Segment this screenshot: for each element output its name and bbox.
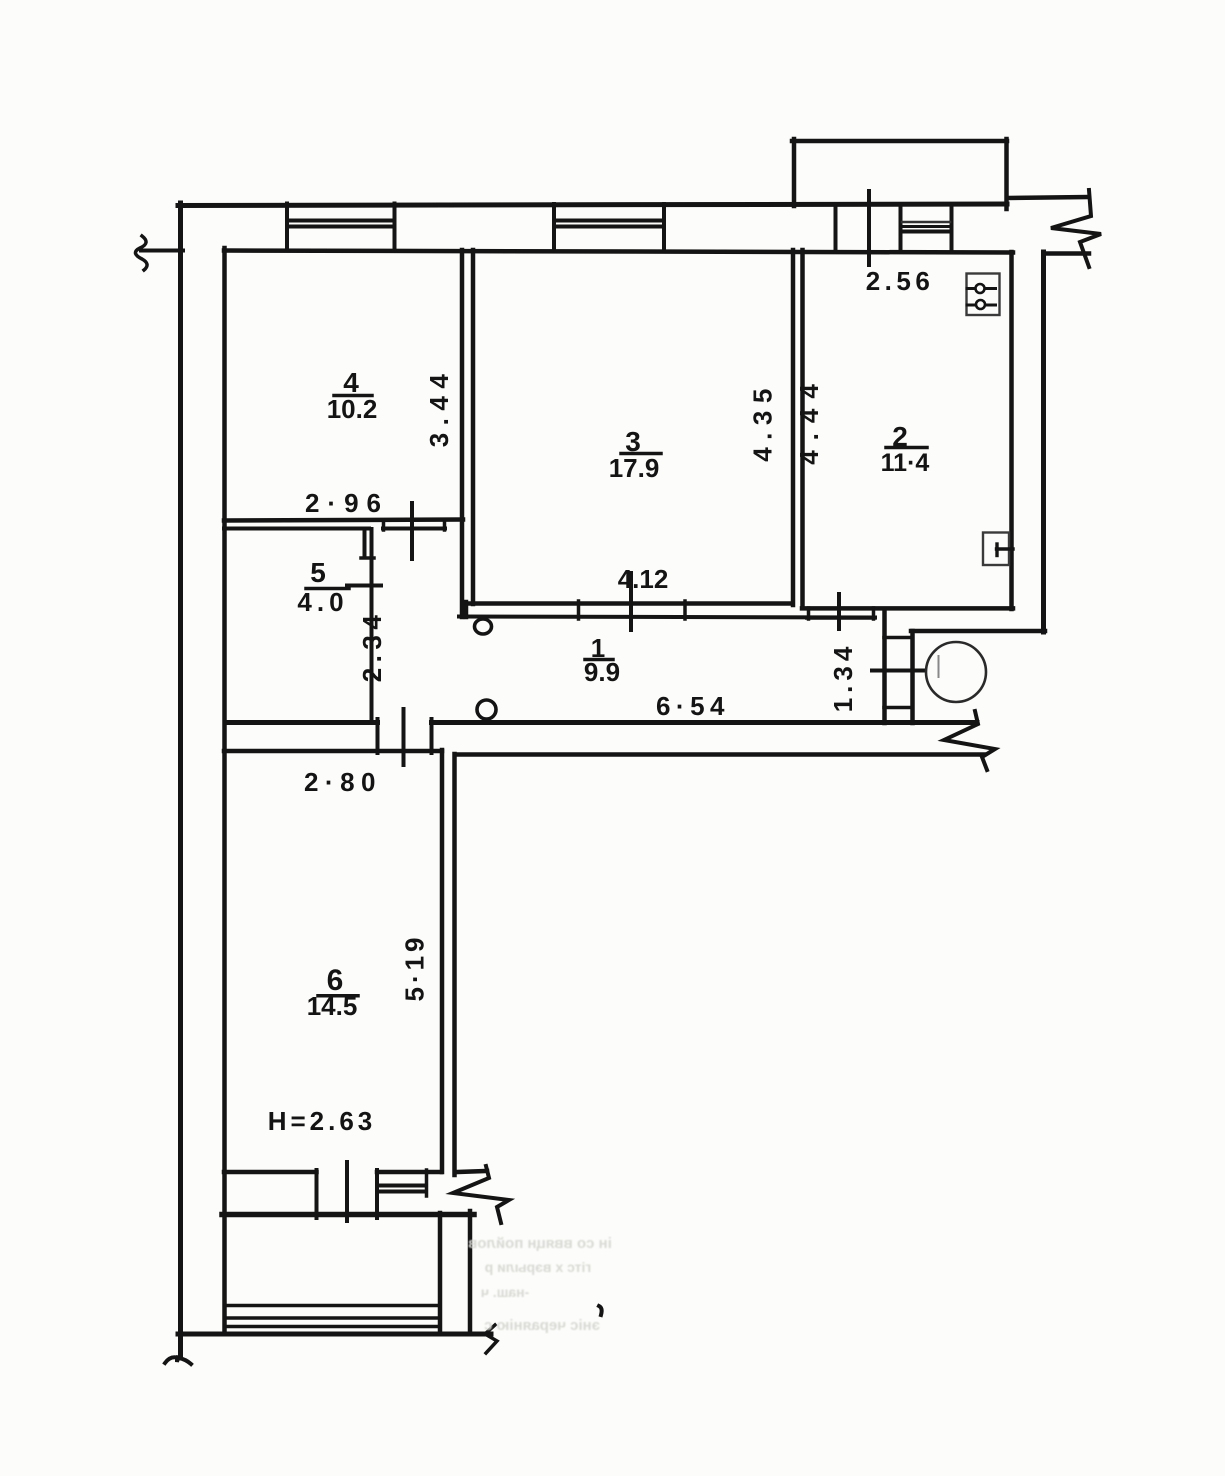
svg-text:2·80: 2·80 <box>304 767 382 797</box>
svg-text:5: 5 <box>310 557 326 588</box>
svg-text:гітс х вэрыли р: гітс х вэрыли р <box>485 1259 592 1275</box>
svg-text:ін co ввяцн пойлов: ін co ввяцн пойлов <box>468 1235 612 1252</box>
svg-text:5·19: 5·19 <box>400 933 430 1001</box>
svg-text:9.9: 9.9 <box>584 657 620 687</box>
svg-text:14.5: 14.5 <box>307 991 358 1021</box>
svg-text:2.34: 2.34 <box>357 610 387 683</box>
svg-text:4.0: 4.0 <box>297 587 348 617</box>
svg-text:2.56: 2.56 <box>866 266 935 296</box>
svg-text:3.44: 3.44 <box>424 367 454 448</box>
svg-text:4.35: 4.35 <box>748 381 778 462</box>
svg-text:6·54: 6·54 <box>656 691 730 721</box>
svg-text:11·4: 11·4 <box>881 449 930 477</box>
svg-text:4.44: 4.44 <box>794 374 824 465</box>
svg-text:4.12: 4.12 <box>618 564 669 594</box>
svg-text:эніс чераянію с: эніс чераянію с <box>484 1317 600 1334</box>
svg-text:1.34: 1.34 <box>828 642 858 713</box>
svg-text:17.9: 17.9 <box>609 453 660 483</box>
svg-text:10.2: 10.2 <box>327 394 378 424</box>
svg-text:-наш. ч: -наш. ч <box>481 1284 529 1300</box>
svg-text:H=2.63: H=2.63 <box>268 1106 377 1136</box>
svg-text:2·96: 2·96 <box>305 488 389 518</box>
